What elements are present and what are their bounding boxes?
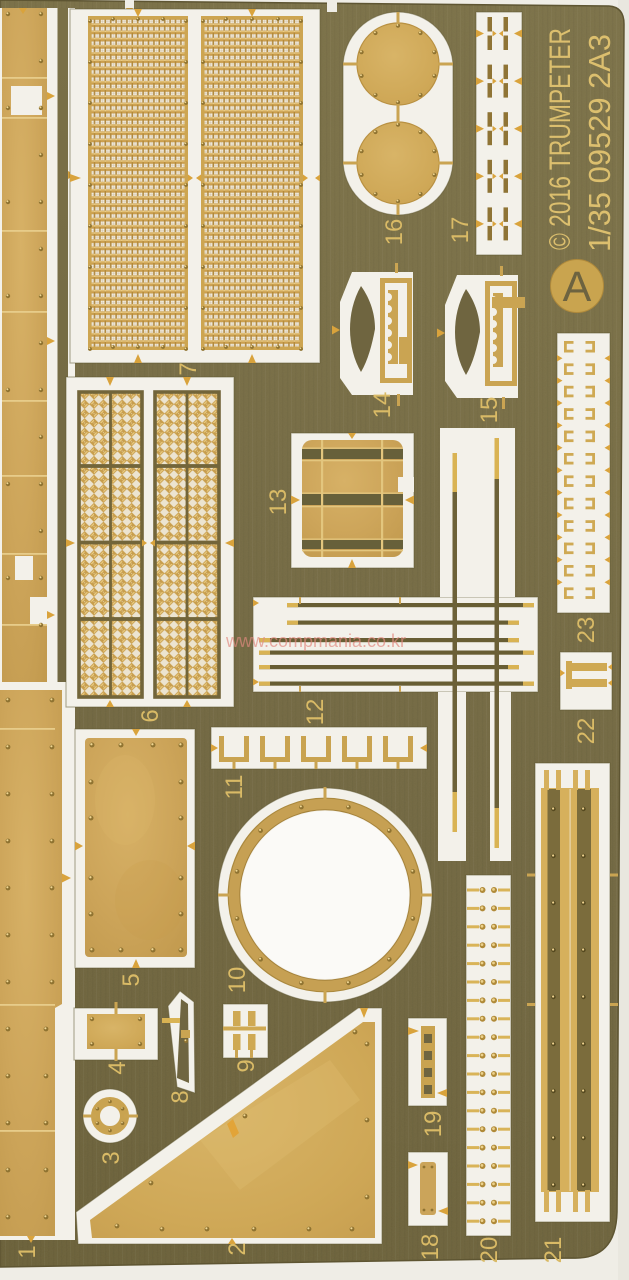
svg-text:15: 15 bbox=[476, 397, 503, 424]
svg-text:© 2016 TRUMPETER: © 2016 TRUMPETER bbox=[544, 28, 577, 250]
svg-text:21: 21 bbox=[540, 1237, 567, 1264]
svg-text:1/35 09529 2A3: 1/35 09529 2A3 bbox=[582, 34, 617, 252]
svg-text:13: 13 bbox=[265, 489, 292, 516]
svg-text:23: 23 bbox=[573, 617, 600, 644]
svg-text:1: 1 bbox=[14, 1245, 41, 1258]
svg-text:16: 16 bbox=[381, 219, 408, 246]
svg-text:8: 8 bbox=[167, 1090, 194, 1103]
svg-text:4: 4 bbox=[104, 1061, 131, 1074]
svg-text:www.compmania.co.kr: www.compmania.co.kr bbox=[225, 631, 406, 651]
svg-text:14: 14 bbox=[369, 392, 396, 419]
svg-text:3: 3 bbox=[98, 1151, 125, 1164]
svg-text:6: 6 bbox=[137, 709, 164, 722]
svg-text:12: 12 bbox=[302, 699, 329, 726]
svg-text:7: 7 bbox=[175, 362, 202, 375]
svg-text:9: 9 bbox=[233, 1059, 260, 1072]
svg-text:10: 10 bbox=[224, 967, 251, 994]
svg-text:17: 17 bbox=[447, 217, 474, 244]
svg-text:22: 22 bbox=[573, 718, 600, 745]
svg-text:5: 5 bbox=[118, 973, 145, 986]
svg-text:19: 19 bbox=[420, 1111, 447, 1138]
svg-text:A: A bbox=[563, 263, 592, 311]
svg-text:20: 20 bbox=[476, 1237, 503, 1264]
svg-text:11: 11 bbox=[221, 775, 248, 800]
svg-text:2: 2 bbox=[224, 1242, 251, 1255]
svg-text:18: 18 bbox=[417, 1234, 444, 1261]
